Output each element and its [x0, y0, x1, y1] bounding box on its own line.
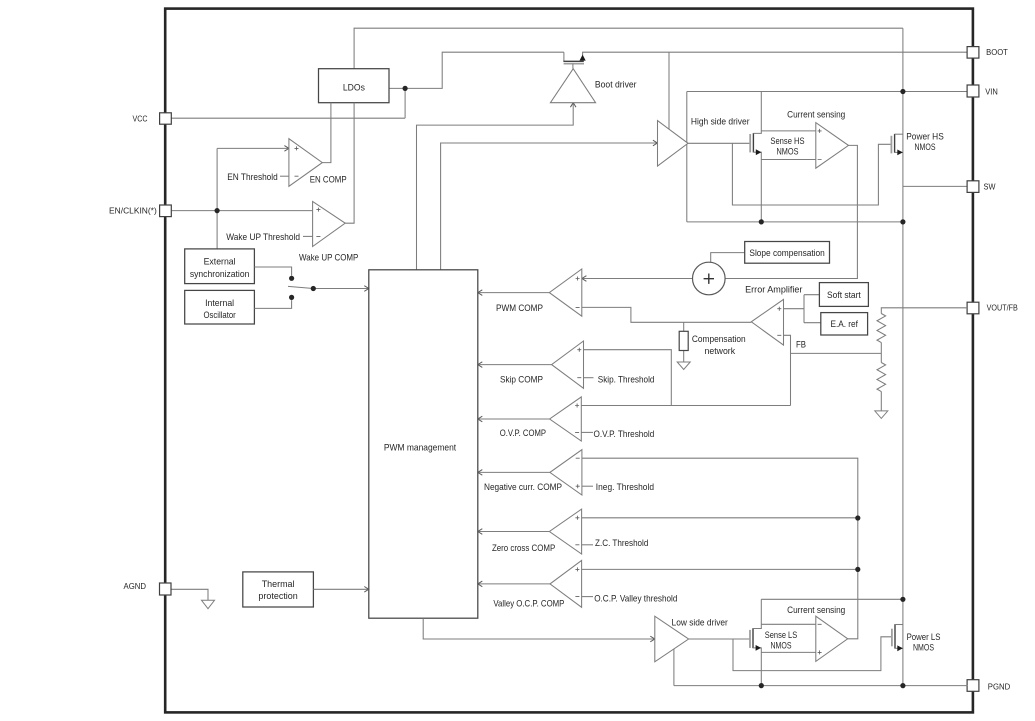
svg-text:PWM COMP: PWM COMP: [496, 303, 543, 314]
svg-text:PWM management: PWM management: [384, 442, 457, 453]
svg-text:Z.C. Threshold: Z.C. Threshold: [595, 538, 648, 549]
svg-text:Soft start: Soft start: [827, 290, 861, 301]
svg-text:O.V.P. Threshold: O.V.P. Threshold: [594, 429, 655, 440]
svg-text:NMOS: NMOS: [913, 642, 934, 653]
svg-text:Compensation: Compensation: [692, 334, 746, 345]
svg-text:VCC: VCC: [133, 114, 148, 123]
svg-text:network: network: [705, 346, 736, 357]
svg-text:EN/CLKIN(*): EN/CLKIN(*): [109, 207, 157, 216]
svg-text:High side driver: High side driver: [691, 117, 750, 128]
svg-text:Power LS: Power LS: [907, 632, 941, 643]
svg-text:NMOS: NMOS: [915, 142, 936, 153]
svg-text:PGND: PGND: [988, 682, 1011, 691]
svg-text:protection: protection: [258, 591, 297, 602]
svg-text:LDOs: LDOs: [343, 82, 365, 93]
svg-text:VOUT/FB: VOUT/FB: [987, 304, 1018, 313]
svg-text:SW: SW: [984, 182, 996, 191]
svg-text:Boot driver: Boot driver: [595, 80, 637, 91]
svg-text:EN Threshold: EN Threshold: [227, 172, 278, 183]
svg-text:EN COMP: EN COMP: [310, 175, 347, 186]
svg-text:Current sensing: Current sensing: [787, 109, 845, 120]
svg-text:Internal: Internal: [205, 298, 234, 309]
svg-text:Skip. Threshold: Skip. Threshold: [598, 375, 655, 386]
svg-text:E.A. ref: E.A. ref: [830, 319, 858, 330]
svg-text:Ineg. Threshold: Ineg. Threshold: [596, 482, 654, 493]
svg-text:Error Amplifier: Error Amplifier: [745, 284, 802, 295]
svg-text:VIN: VIN: [985, 87, 998, 96]
svg-text:Current sensing: Current sensing: [787, 605, 845, 616]
svg-text:O.C.P. Valley threshold: O.C.P. Valley threshold: [594, 594, 677, 605]
svg-text:Oscillator: Oscillator: [203, 310, 235, 321]
svg-text:Skip COMP: Skip COMP: [500, 375, 543, 386]
svg-text:Power HS: Power HS: [906, 131, 944, 142]
svg-text:BOOT: BOOT: [986, 48, 1008, 57]
svg-text:Sense LS: Sense LS: [765, 630, 797, 641]
svg-text:Wake UP Threshold: Wake UP Threshold: [226, 232, 300, 243]
svg-text:O.V.P. COMP: O.V.P. COMP: [500, 428, 546, 439]
svg-text:NMOS: NMOS: [777, 146, 799, 157]
svg-text:Sense HS: Sense HS: [770, 136, 804, 147]
svg-text:FB: FB: [796, 340, 806, 351]
svg-text:Thermal: Thermal: [262, 579, 295, 590]
svg-text:Valley O.C.P. COMP: Valley O.C.P. COMP: [493, 599, 564, 610]
svg-text:Slope compensation: Slope compensation: [749, 248, 824, 259]
svg-text:Low side driver: Low side driver: [672, 617, 728, 628]
svg-text:Zero cross COMP: Zero cross COMP: [492, 543, 555, 554]
svg-text:AGND: AGND: [124, 582, 147, 591]
svg-text:External: External: [204, 257, 236, 268]
svg-text:Wake UP COMP: Wake UP COMP: [299, 253, 358, 264]
svg-text:synchronization: synchronization: [190, 269, 250, 280]
svg-text:Negative curr. COMP: Negative curr. COMP: [484, 482, 562, 493]
svg-text:NMOS: NMOS: [771, 640, 792, 651]
